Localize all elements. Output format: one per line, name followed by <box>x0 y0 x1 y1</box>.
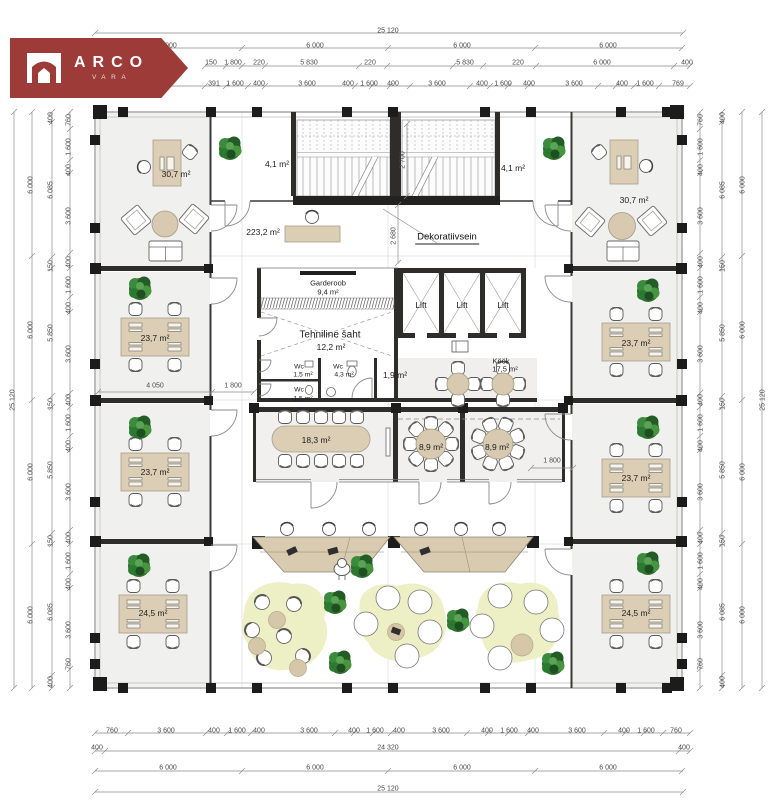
dim-label: 150 <box>720 398 727 410</box>
room-label-office-l1: 23,7 m² <box>141 333 170 343</box>
dim-label: 3 600 <box>432 728 450 735</box>
dim-label: 1 600 <box>636 81 654 88</box>
dim-label: 400 <box>66 578 73 590</box>
dim-label: 1 600 <box>698 414 705 432</box>
dim-label: 769 <box>672 81 684 88</box>
dim-label: 3 600 <box>157 728 175 735</box>
arco-vara-logo: ARCO VARA <box>10 38 188 98</box>
dim-label: 400 <box>48 112 55 124</box>
dim-label: 400 <box>342 81 354 88</box>
dim-label: 3 600 <box>565 81 583 88</box>
dim-label: 3 600 <box>66 345 73 363</box>
arco-house-icon <box>27 53 61 83</box>
dim-label: 150 <box>48 260 55 272</box>
dim-label: 400 <box>523 81 535 88</box>
staircase-right <box>402 120 495 196</box>
dim-label: 6 000 <box>306 43 324 50</box>
dim-label: 760 <box>698 658 705 670</box>
dim-label: 220 <box>364 60 376 67</box>
room-label-shaft-area: 12,2 m² <box>317 342 346 352</box>
decor-wall-label: Dekoratiivsein <box>415 232 479 245</box>
dim-label: 150 <box>720 535 727 547</box>
dim-label: 220 <box>253 60 265 67</box>
dim-label: 400 <box>698 256 705 268</box>
dim-label: 6 000 <box>453 43 471 50</box>
room-label-office-l2: 23,7 m² <box>141 467 170 477</box>
dim-label: 6 000 <box>740 463 747 481</box>
dim-label: 400 <box>66 440 73 452</box>
dim-label: 400 <box>618 728 630 735</box>
dim-label: 1 600 <box>637 728 655 735</box>
dim-label: 3 600 <box>66 621 73 639</box>
dim-label: 400 <box>393 728 405 735</box>
dim-label: 6 000 <box>740 176 747 194</box>
dim-label: 150 <box>48 398 55 410</box>
dim-label: 760 <box>670 728 682 735</box>
dim-label: 400 <box>616 81 628 88</box>
dim-label: 6 000 <box>306 765 324 772</box>
room-label-meeting-b: 8,9 m² <box>485 442 509 452</box>
room-label-kitchen-area: 17,5 m² <box>492 365 517 374</box>
dim-label: 400 <box>253 81 265 88</box>
dim-label: 400 <box>66 164 73 176</box>
dim-label: 3 600 <box>698 621 705 639</box>
dim-label: 150 <box>720 260 727 272</box>
room-label-wc2: Wc <box>294 387 304 394</box>
room-label-office-tl: 30,7 m² <box>162 169 191 179</box>
dim-label: 5 830 <box>300 60 318 67</box>
room-label-lift-3: Lift <box>497 300 508 310</box>
dim-label: 3 600 <box>698 483 705 501</box>
dim-label: 1 600 <box>698 552 705 570</box>
dim-label: 400 <box>678 745 690 752</box>
room-label-lift-1: Lift <box>415 300 426 310</box>
dim-label: 760 <box>66 658 73 670</box>
dim-label: 1 600 <box>494 81 512 88</box>
dim-label: 6 000 <box>599 43 617 50</box>
room-label-wc3-area: 4,3 m² <box>334 372 353 379</box>
dim-label: 6 000 <box>599 765 617 772</box>
dim-label: 3 600 <box>568 728 586 735</box>
dim-label: 400 <box>66 394 73 406</box>
dim-label: 1 600 <box>66 552 73 570</box>
dim-label: 400 <box>698 532 705 544</box>
room-label-wc1: Wc <box>294 364 304 371</box>
staircase-left <box>297 120 390 196</box>
dim-label: 5 850 <box>48 324 55 342</box>
dim-label: 5 850 <box>720 461 727 479</box>
dim-label: 400 <box>720 112 727 124</box>
dim-label: 400 <box>253 728 265 735</box>
dim-label: 400 <box>527 728 539 735</box>
dim-label: 6 085 <box>720 181 727 199</box>
dim-label: 3 600 <box>698 345 705 363</box>
logo-text: ARCO VARA <box>74 55 149 81</box>
dim-label: 3 600 <box>298 81 316 88</box>
logo-sub: VARA <box>74 74 149 81</box>
dim-label: 4 050 <box>146 383 164 390</box>
dim-label: 1 600 <box>360 81 378 88</box>
logo-brand: ARCO <box>74 55 149 71</box>
dim-label: 25 120 <box>10 389 17 410</box>
dim-label: 150 <box>48 535 55 547</box>
dim-label: 6 000 <box>28 463 35 481</box>
dim-label: 400 <box>481 728 493 735</box>
dim-label: 1 600 <box>66 138 73 156</box>
dim-label: 400 <box>208 728 220 735</box>
dim-label: 400 <box>91 745 103 752</box>
room-label-meeting-large: 18,3 m² <box>302 435 331 445</box>
dim-label: 1 600 <box>66 414 73 432</box>
dim-label: 25 120 <box>377 28 398 35</box>
dim-label: 6 085 <box>720 603 727 621</box>
room-label-wc3: Wc <box>333 364 343 371</box>
dim-label: 1 800 <box>224 383 242 390</box>
dim-label: 1 600 <box>366 728 384 735</box>
dim-label: 391 <box>208 81 220 88</box>
room-label-office-l3: 24,5 m² <box>139 608 168 618</box>
dim-label: 2 680 <box>391 227 398 245</box>
dim-label: 3 600 <box>698 207 705 225</box>
dim-label: 25 120 <box>760 389 767 410</box>
dim-label: 5 850 <box>48 461 55 479</box>
room-label-office-r2: 23,7 m² <box>622 473 651 483</box>
dim-label: 760 <box>66 114 73 126</box>
room-label-open-space: 223,2 m² <box>246 227 280 237</box>
dim-label: 6 000 <box>740 606 747 624</box>
dim-label: 400 <box>698 440 705 452</box>
dim-label: 6 000 <box>593 60 611 67</box>
dim-label: 3 600 <box>66 207 73 225</box>
room-label-meeting-a: 8,9 m² <box>419 442 443 452</box>
dim-label: 1 800 <box>224 60 242 67</box>
room-label-vestibule-right: 4,1 m² <box>501 163 525 173</box>
glass-door-marker <box>386 428 390 456</box>
room-label-hall-area: 1,9 m² <box>383 370 407 380</box>
dim-label: 400 <box>698 164 705 176</box>
dim-label: 1 600 <box>698 276 705 294</box>
dim-label: 6 000 <box>159 765 177 772</box>
dim-label: 6 085 <box>48 181 55 199</box>
dim-label: 5 830 <box>456 60 474 67</box>
dim-label: 400 <box>476 81 488 88</box>
floor-plan-drawing <box>0 0 777 811</box>
dim-label: 400 <box>698 578 705 590</box>
dim-label: 6 000 <box>740 321 747 339</box>
dim-label: 3 600 <box>300 728 318 735</box>
dim-label: 400 <box>348 728 360 735</box>
dim-label: 2 700 <box>400 151 407 169</box>
dim-label: 760 <box>106 728 118 735</box>
dim-label: 6 000 <box>453 765 471 772</box>
dim-label: 1 600 <box>226 81 244 88</box>
dim-label: 1 600 <box>698 138 705 156</box>
dim-label: 1 800 <box>543 458 561 465</box>
room-label-lift-2: Lift <box>456 300 467 310</box>
room-label-office-r3: 24,5 m² <box>622 608 651 618</box>
dim-label: 400 <box>698 394 705 406</box>
dim-label: 760 <box>698 114 705 126</box>
dim-label: 400 <box>48 676 55 688</box>
room-label-shaft: Tehniline šaht <box>299 330 360 341</box>
dim-label: 400 <box>66 532 73 544</box>
dim-label: 400 <box>387 81 399 88</box>
dim-label: 220 <box>512 60 524 67</box>
room-label-vestibule-left: 4,1 m² <box>265 159 289 169</box>
room-label-wc1-area: 1,5 m² <box>293 372 312 379</box>
dim-label: 150 <box>205 60 217 67</box>
dim-label: 1 600 <box>500 728 518 735</box>
room-label-garderoob: Garderoob <box>310 279 346 288</box>
room-label-office-tr: 30,7 m² <box>620 195 649 205</box>
dim-label: 400 <box>66 302 73 314</box>
dim-label: 400 <box>698 302 705 314</box>
dim-label: 5 850 <box>720 324 727 342</box>
dim-label: 3 600 <box>66 483 73 501</box>
dim-label: 24 320 <box>377 745 398 752</box>
dim-label: 400 <box>66 256 73 268</box>
room-label-wc2-area: 1,5 m² <box>293 396 312 403</box>
dim-label: 6 000 <box>28 606 35 624</box>
dim-label: 400 <box>681 60 693 67</box>
electrical-box <box>452 341 468 352</box>
dim-label: 400 <box>720 676 727 688</box>
lounge-blobs <box>242 582 564 676</box>
room-label-office-r1: 23,7 m² <box>622 338 651 348</box>
dim-label: 6 000 <box>28 321 35 339</box>
dim-label: 6 000 <box>28 176 35 194</box>
dim-label: 1 600 <box>66 276 73 294</box>
floor-plan-canvas: 25 120 6 000 6 000 6 000 6 000 150 1 800… <box>0 0 777 811</box>
dim-label: 1 600 <box>228 728 246 735</box>
dim-label: 25 120 <box>377 786 398 793</box>
room-label-garderoob-area: 9,4 m² <box>317 288 338 297</box>
dim-label: 3 600 <box>428 81 446 88</box>
dim-label: 6 085 <box>48 603 55 621</box>
